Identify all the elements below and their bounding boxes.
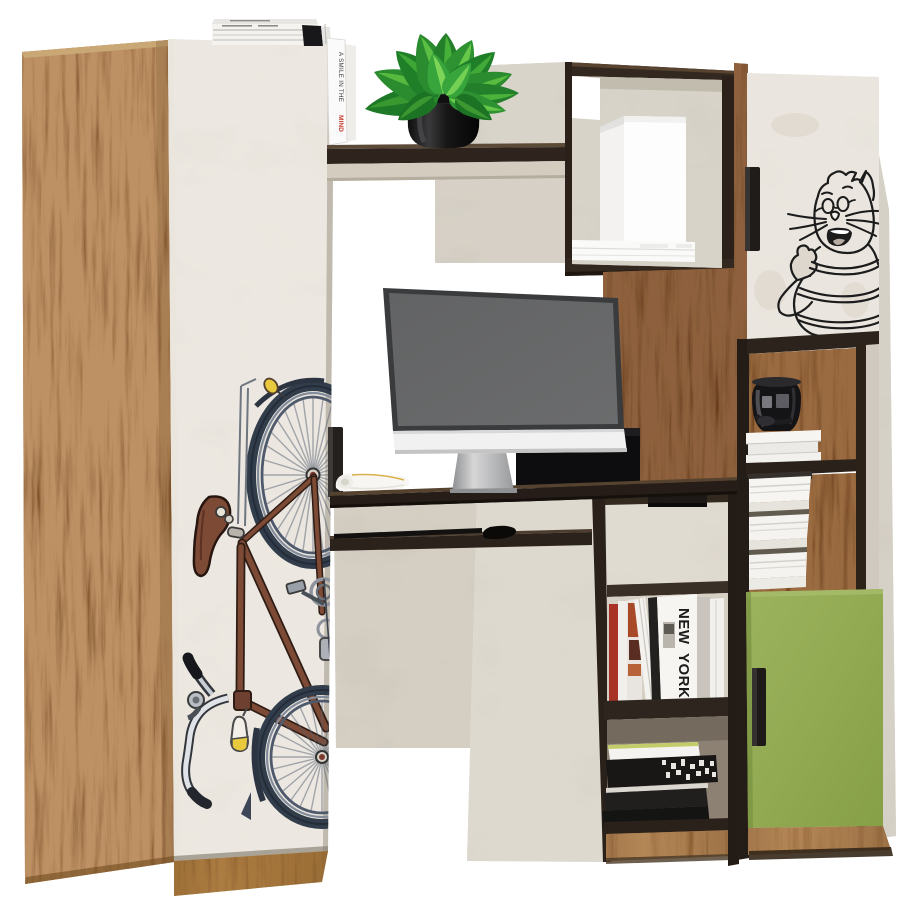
svg-text:NEW: NEW (675, 608, 692, 645)
svg-text:MIND: MIND (337, 115, 344, 132)
svg-text:A SMILE IN THE: A SMILE IN THE (337, 52, 344, 102)
svg-text:YORK: YORK (675, 653, 692, 698)
